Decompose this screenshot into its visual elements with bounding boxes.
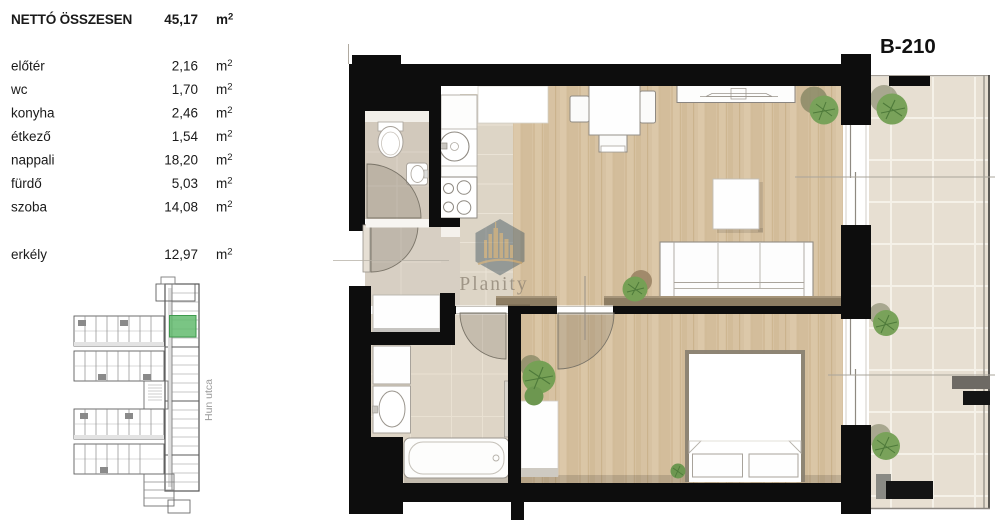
svg-text:2,46: 2,46 <box>172 106 198 121</box>
svg-text:12,97: 12,97 <box>164 247 198 262</box>
svg-text:18,20: 18,20 <box>164 153 198 168</box>
svg-text:NETTÓ ÖSSZESEN: NETTÓ ÖSSZESEN <box>11 12 132 27</box>
svg-text:erkély: erkély <box>11 247 47 262</box>
svg-text:fürdő: fürdő <box>11 176 42 191</box>
svg-text:2,16: 2,16 <box>172 59 198 74</box>
svg-text:45,17: 45,17 <box>164 12 198 27</box>
svg-text:5,03: 5,03 <box>172 176 198 191</box>
svg-text:szoba: szoba <box>11 200 48 215</box>
svg-text:14,08: 14,08 <box>164 200 198 215</box>
svg-text:Hun utca: Hun utca <box>203 379 215 421</box>
svg-text:előtér: előtér <box>11 59 45 74</box>
svg-text:nappali: nappali <box>11 153 55 168</box>
svg-text:B-210: B-210 <box>880 35 936 58</box>
svg-text:Planity: Planity <box>459 274 528 295</box>
svg-text:1,54: 1,54 <box>172 129 199 144</box>
svg-text:étkező: étkező <box>11 129 51 144</box>
svg-text:konyha: konyha <box>11 106 55 121</box>
svg-text:wc: wc <box>10 82 28 97</box>
svg-text:1,70: 1,70 <box>172 82 198 97</box>
